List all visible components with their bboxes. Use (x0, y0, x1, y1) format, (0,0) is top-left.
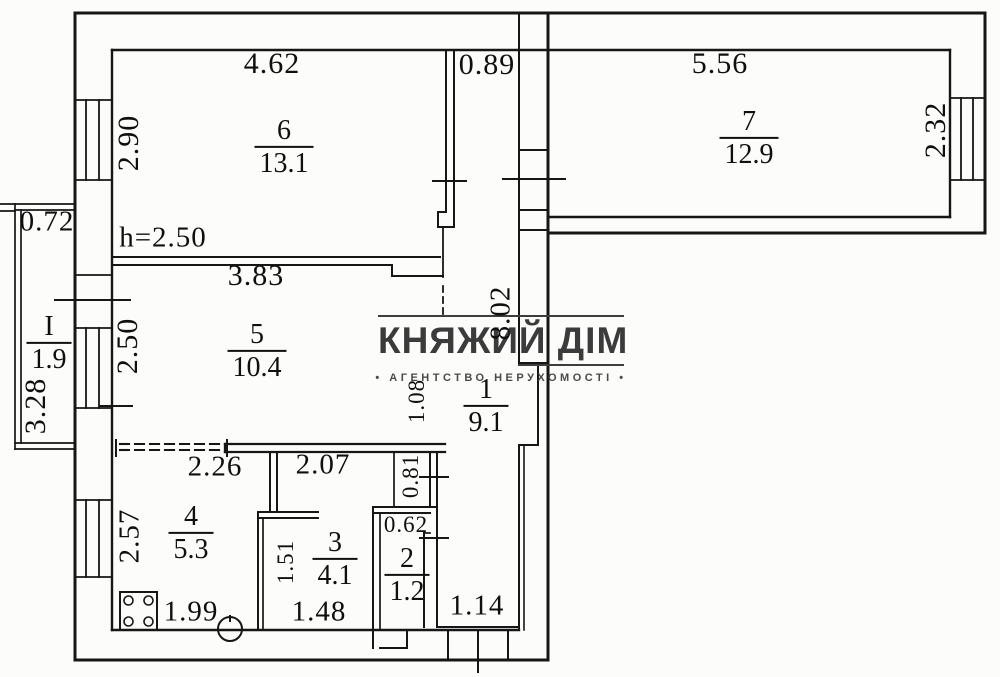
dim-ceiling-height: h=2.50 (119, 222, 207, 255)
room-area: 9.1 (464, 405, 509, 437)
room-area: 1.9 (27, 342, 72, 374)
dim-room6-width: 4.62 (244, 47, 301, 81)
right-wall-window (950, 98, 985, 180)
dim-balcony-length: 3.28 (19, 378, 53, 435)
dim-room5-height: 2.50 (111, 318, 145, 375)
dim-total-inner-length: 8.02 (485, 286, 518, 341)
dim-room7-width: 5.56 (692, 47, 749, 81)
stove-icon (120, 592, 157, 630)
room-area: 13.1 (255, 146, 314, 178)
left-wall-windows (75, 100, 112, 577)
dim-room7-height: 2.32 (919, 102, 953, 159)
dim-hall-niche-width: 1.08 (404, 379, 430, 423)
room-label-6: 6 13.1 (255, 116, 314, 178)
watermark-underline (518, 364, 624, 366)
room-number: I (42, 312, 55, 342)
floor-plan: КНЯЖИЙ ДІМ • АГЕНТСТВО НЕРУХОМОСТІ • 4.6… (0, 0, 1000, 677)
room-label-3: 3 4.1 (313, 528, 358, 590)
room-number: 6 (275, 116, 293, 146)
bottom-wing-top-wall (116, 440, 445, 456)
dim-room2-width: 0.62 (384, 512, 428, 538)
room-number: 3 (326, 528, 344, 558)
room-label-5: 5 10.4 (228, 320, 287, 382)
dim-hall-bottom-width: 2.07 (296, 449, 351, 482)
dim-room4-height: 2.57 (114, 509, 147, 564)
room-label-7: 7 12.9 (720, 107, 779, 169)
dim-room3-width: 1.48 (292, 596, 347, 629)
room-number: 7 (740, 107, 758, 137)
dim-room5-width: 3.83 (228, 259, 285, 293)
room-number: 1 (477, 375, 495, 405)
dim-room3-height: 1.51 (273, 540, 299, 584)
dim-balcony-width: 0.72 (20, 206, 75, 239)
dim-room4-width: 1.99 (164, 596, 219, 629)
room-area: 12.9 (720, 137, 779, 169)
room-label-1: 1 9.1 (464, 375, 509, 437)
room-label-2: 2 1.2 (385, 544, 430, 606)
room-area: 10.4 (228, 350, 287, 382)
room-label-4: 4 5.3 (169, 502, 214, 564)
dim-niche-height: 0.81 (398, 454, 424, 498)
room-area: 5.3 (169, 532, 214, 564)
dim-hall-top-width: 0.89 (459, 48, 516, 82)
dim-corridor-width: 1.14 (450, 590, 505, 623)
room-area: 4.1 (313, 558, 358, 590)
dim-room6-height: 2.90 (112, 115, 146, 172)
sink-icon (218, 615, 242, 641)
room-number: 4 (182, 502, 200, 532)
room-number: 2 (398, 544, 416, 574)
room-label-balcony: I 1.9 (27, 312, 72, 374)
duct-walls (519, 13, 548, 363)
room-area: 1.2 (385, 574, 430, 606)
room-number: 5 (248, 320, 266, 350)
dim-room4-opening: 2.26 (188, 451, 243, 484)
entrance-door (448, 631, 508, 672)
